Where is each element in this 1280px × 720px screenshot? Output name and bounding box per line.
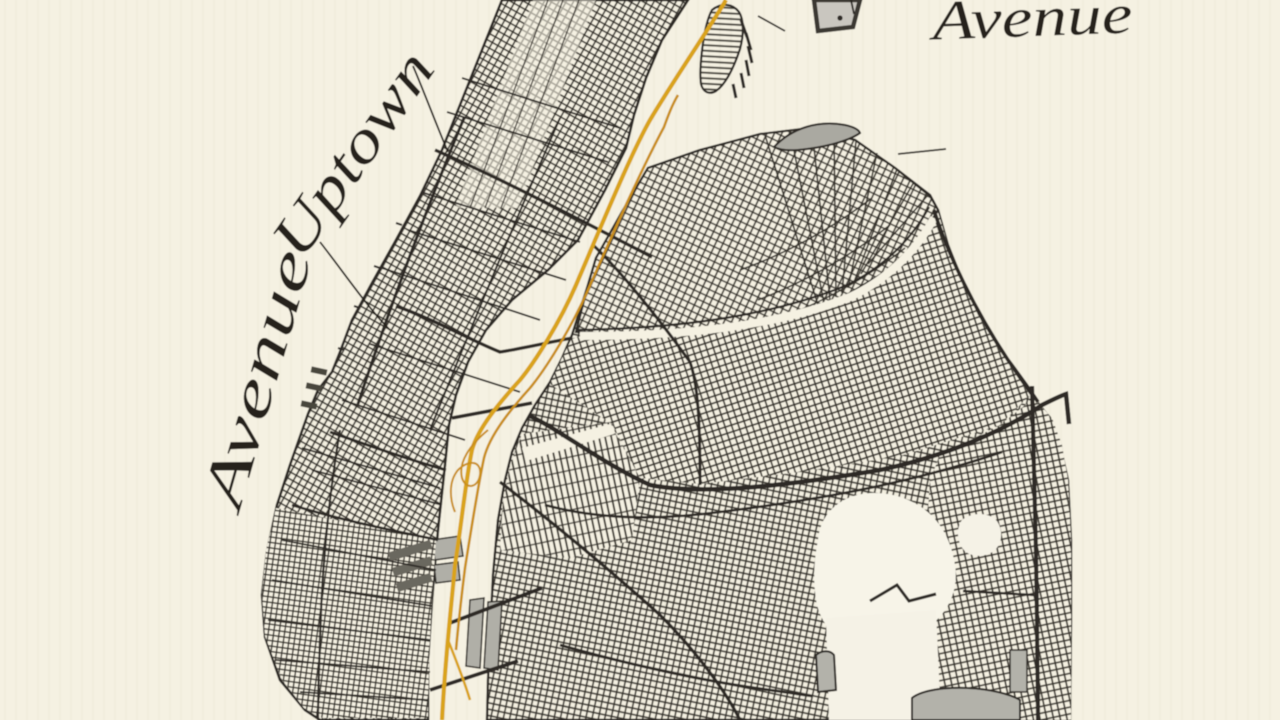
- svg-text:Avenue: Avenue: [926, 0, 1133, 53]
